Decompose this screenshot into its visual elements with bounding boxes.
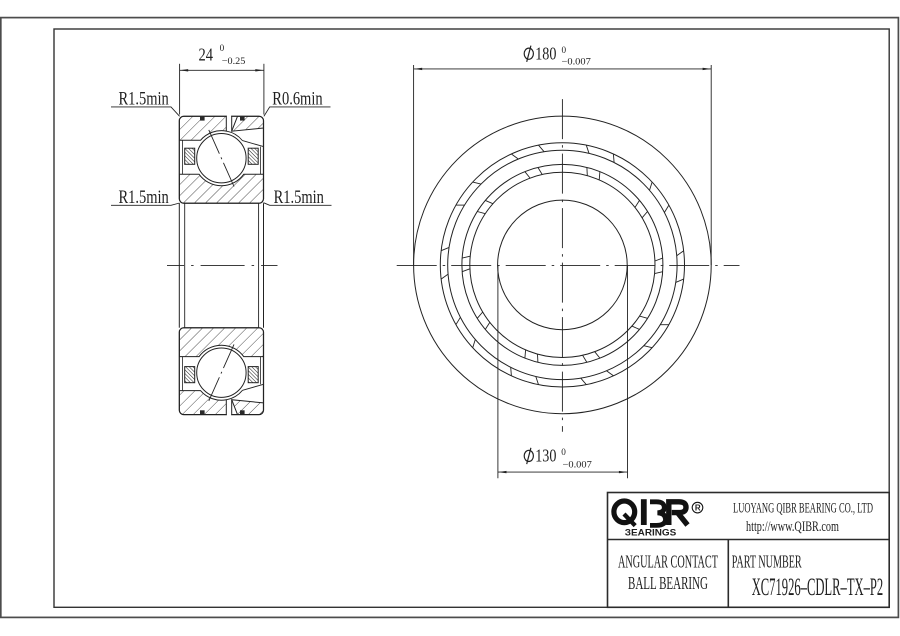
- svg-text:0: 0: [561, 447, 566, 458]
- svg-text:180: 180: [535, 43, 556, 63]
- svg-text:130: 130: [535, 445, 556, 465]
- svg-text:ANGULAR CONTACT: ANGULAR CONTACT: [618, 551, 718, 571]
- svg-text:ЗEARINGS: ЗEARINGS: [625, 527, 677, 538]
- svg-text:0: 0: [562, 45, 567, 56]
- svg-text:R1.5min: R1.5min: [119, 89, 170, 110]
- svg-text:R: R: [695, 504, 701, 513]
- svg-text:http://www.QIBR.com: http://www.QIBR.com: [746, 519, 839, 535]
- svg-text:0: 0: [220, 43, 225, 54]
- svg-text:−0.007: −0.007: [563, 459, 592, 470]
- svg-text:BALL BEARING: BALL BEARING: [628, 573, 708, 593]
- svg-text:−0.25: −0.25: [222, 56, 246, 67]
- svg-text:R1.5min: R1.5min: [274, 187, 325, 208]
- svg-text:24: 24: [199, 44, 214, 64]
- svg-text:−0.007: −0.007: [562, 56, 591, 67]
- svg-text:XC71926–CDLR–TX–P2: XC71926–CDLR–TX–P2: [752, 574, 884, 601]
- svg-text:R1.5min: R1.5min: [119, 187, 170, 208]
- svg-text:PART NUMBER: PART NUMBER: [732, 551, 802, 571]
- svg-text:LUOYANG QIBR BEARING CO., LTD: LUOYANG QIBR BEARING CO., LTD: [733, 500, 873, 516]
- svg-text:R0.6min: R0.6min: [272, 89, 323, 110]
